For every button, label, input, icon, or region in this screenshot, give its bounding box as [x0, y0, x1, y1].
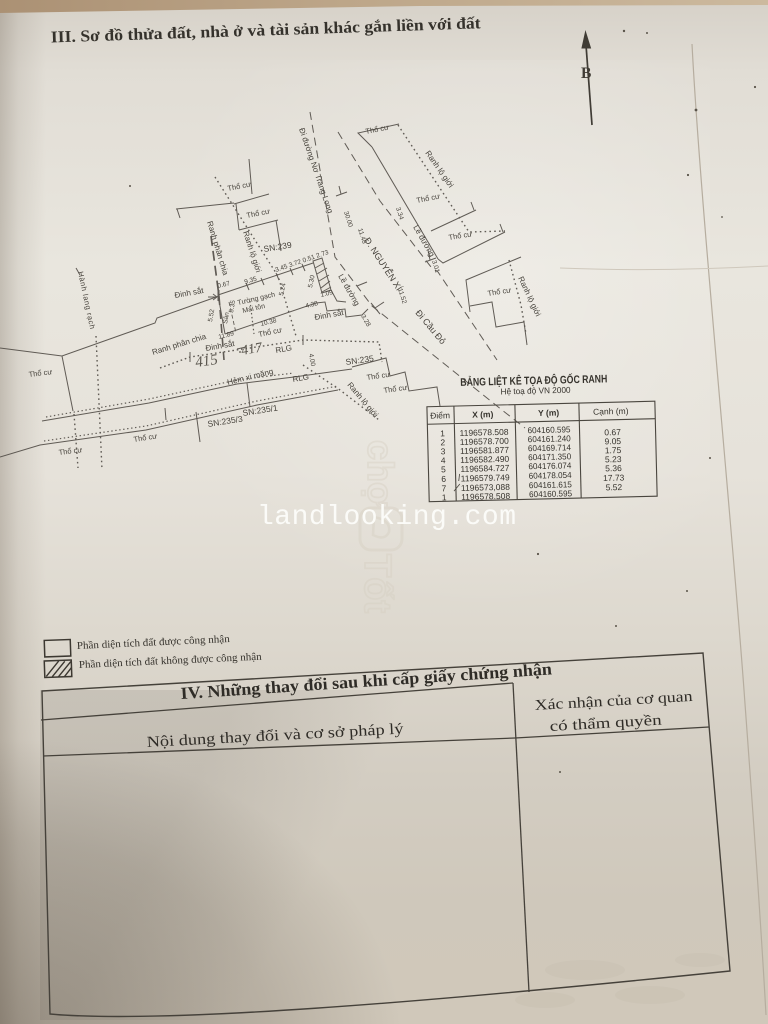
- svg-text:11.48: 11.48: [356, 227, 368, 245]
- svg-text:Thổ cư: Thổ cư: [28, 367, 53, 379]
- svg-text:Thổ cư: Thổ cư: [227, 180, 252, 193]
- svg-text:IV. Những thay đổi sau khi cấp: IV. Những thay đổi sau khi cấp giấy chứn…: [180, 659, 553, 703]
- svg-text:3.01: 3.01: [430, 259, 441, 274]
- svg-text:SN:239: SN:239: [263, 240, 293, 254]
- svg-text:Đinh sắt: Đinh sắt: [205, 339, 236, 353]
- svg-text:Đ. NGUYỄN XÍ: Đ. NGUYỄN XÍ: [362, 235, 405, 293]
- svg-text:Điểm: Điểm: [430, 410, 450, 420]
- svg-text:Phần diện tích đất được công n: Phần diện tích đất được công nhận: [77, 634, 231, 652]
- svg-text:9.35: 9.35: [244, 276, 258, 286]
- svg-text:SN:235/1: SN:235/1: [242, 403, 279, 418]
- svg-text:Lề đường: Lề đường: [336, 273, 361, 308]
- svg-text:Đi Cầu Đỏ: Đi Cầu Đỏ: [413, 308, 447, 346]
- svg-text:RLG: RLG: [292, 372, 310, 384]
- svg-text:1196578.508: 1196578.508: [461, 491, 510, 502]
- svg-text:415: 415: [194, 352, 219, 371]
- svg-text:5.24: 5.24: [278, 282, 288, 296]
- svg-text:Hành lang rạch: Hành lang rạch: [76, 271, 97, 331]
- svg-text:Y (m): Y (m): [538, 408, 560, 419]
- svg-text:5.52: 5.52: [207, 308, 216, 322]
- svg-text:Thổ cư: Thổ cư: [246, 207, 271, 220]
- svg-text:B: B: [581, 65, 591, 82]
- svg-text:Đinh sắt: Đinh sắt: [174, 286, 205, 300]
- svg-text:Thổ cư: Thổ cư: [58, 445, 83, 457]
- svg-text:Lề đường: Lề đường: [411, 224, 436, 259]
- svg-text:Ranh lộ giới: Ranh lộ giới: [345, 381, 380, 420]
- svg-text:III. Sơ đồ thửa đất, nhà ở và: III. Sơ đồ thửa đất, nhà ở và tài sản kh…: [51, 13, 482, 46]
- svg-text:3.28: 3.28: [359, 314, 372, 329]
- svg-text:3.34: 3.34: [394, 206, 405, 221]
- svg-text:Ranh phân chia: Ranh phân chia: [205, 220, 230, 277]
- svg-text:1: 1: [442, 492, 447, 502]
- svg-text:có thẩm quyền: có thẩm quyền: [549, 713, 662, 735]
- svg-text:Phần diện tích đất không được: Phần diện tích đất không được công nhận: [79, 652, 263, 671]
- svg-text:4.00: 4.00: [307, 353, 316, 367]
- svg-text:chợ: chợ: [360, 440, 401, 508]
- svg-text:5.52: 5.52: [606, 482, 623, 492]
- svg-text:Thổ cư: Thổ cư: [416, 192, 441, 205]
- svg-text:Cạnh (m): Cạnh (m): [593, 406, 629, 417]
- svg-text:Hẻm xi măng: Hẻm xi măng: [226, 367, 274, 387]
- svg-text:landlooking.com: landlooking.com: [257, 502, 517, 533]
- svg-text:5.30: 5.30: [307, 274, 317, 288]
- svg-text:Đi đường Nơ Trang Long: Đi đường Nơ Trang Long: [297, 127, 335, 215]
- svg-text:Nội dung thay đổi và cơ sở phá: Nội dung thay đổi và cơ sở pháp lý: [146, 721, 404, 751]
- svg-text:Thổ cư: Thổ cư: [487, 285, 512, 298]
- svg-text:11.52: 11.52: [396, 287, 408, 305]
- svg-text:Thổ cư: Thổ cư: [133, 431, 158, 444]
- svg-text:30.00: 30.00: [342, 210, 354, 228]
- svg-text:Tốt: Tốt: [356, 554, 398, 613]
- svg-text:Thổ cư: Thổ cư: [365, 123, 390, 136]
- svg-text:0.67: 0.67: [217, 280, 231, 290]
- svg-text:4.38: 4.38: [305, 300, 319, 310]
- svg-text:X (m): X (m): [472, 409, 494, 420]
- svg-text:5.35: 5.35: [228, 299, 237, 313]
- svg-text:Ranh phân chia: Ranh phân chia: [151, 332, 208, 357]
- svg-text:417: 417: [240, 340, 264, 359]
- svg-text:Xác nhận của cơ quan: Xác nhận của cơ quan: [534, 689, 693, 714]
- svg-text:604160.595: 604160.595: [529, 488, 572, 499]
- svg-text:Thổ cư: Thổ cư: [383, 383, 408, 395]
- svg-text:Đinh sắt: Đinh sắt: [314, 308, 345, 322]
- svg-text:RLG: RLG: [275, 343, 293, 355]
- svg-text:SN:235: SN:235: [345, 353, 375, 367]
- svg-text:Ranh lộ giới: Ranh lộ giới: [516, 275, 542, 318]
- svg-text:Thổ cư: Thổ cư: [448, 229, 473, 242]
- svg-text:Hệ toạ độ VN 2000: Hệ toạ độ VN 2000: [500, 385, 570, 397]
- svg-text:Ranh lộ giới: Ranh lộ giới: [241, 230, 263, 274]
- svg-text:Thổ cư: Thổ cư: [366, 370, 391, 382]
- svg-text:SN:235/3: SN:235/3: [207, 414, 244, 429]
